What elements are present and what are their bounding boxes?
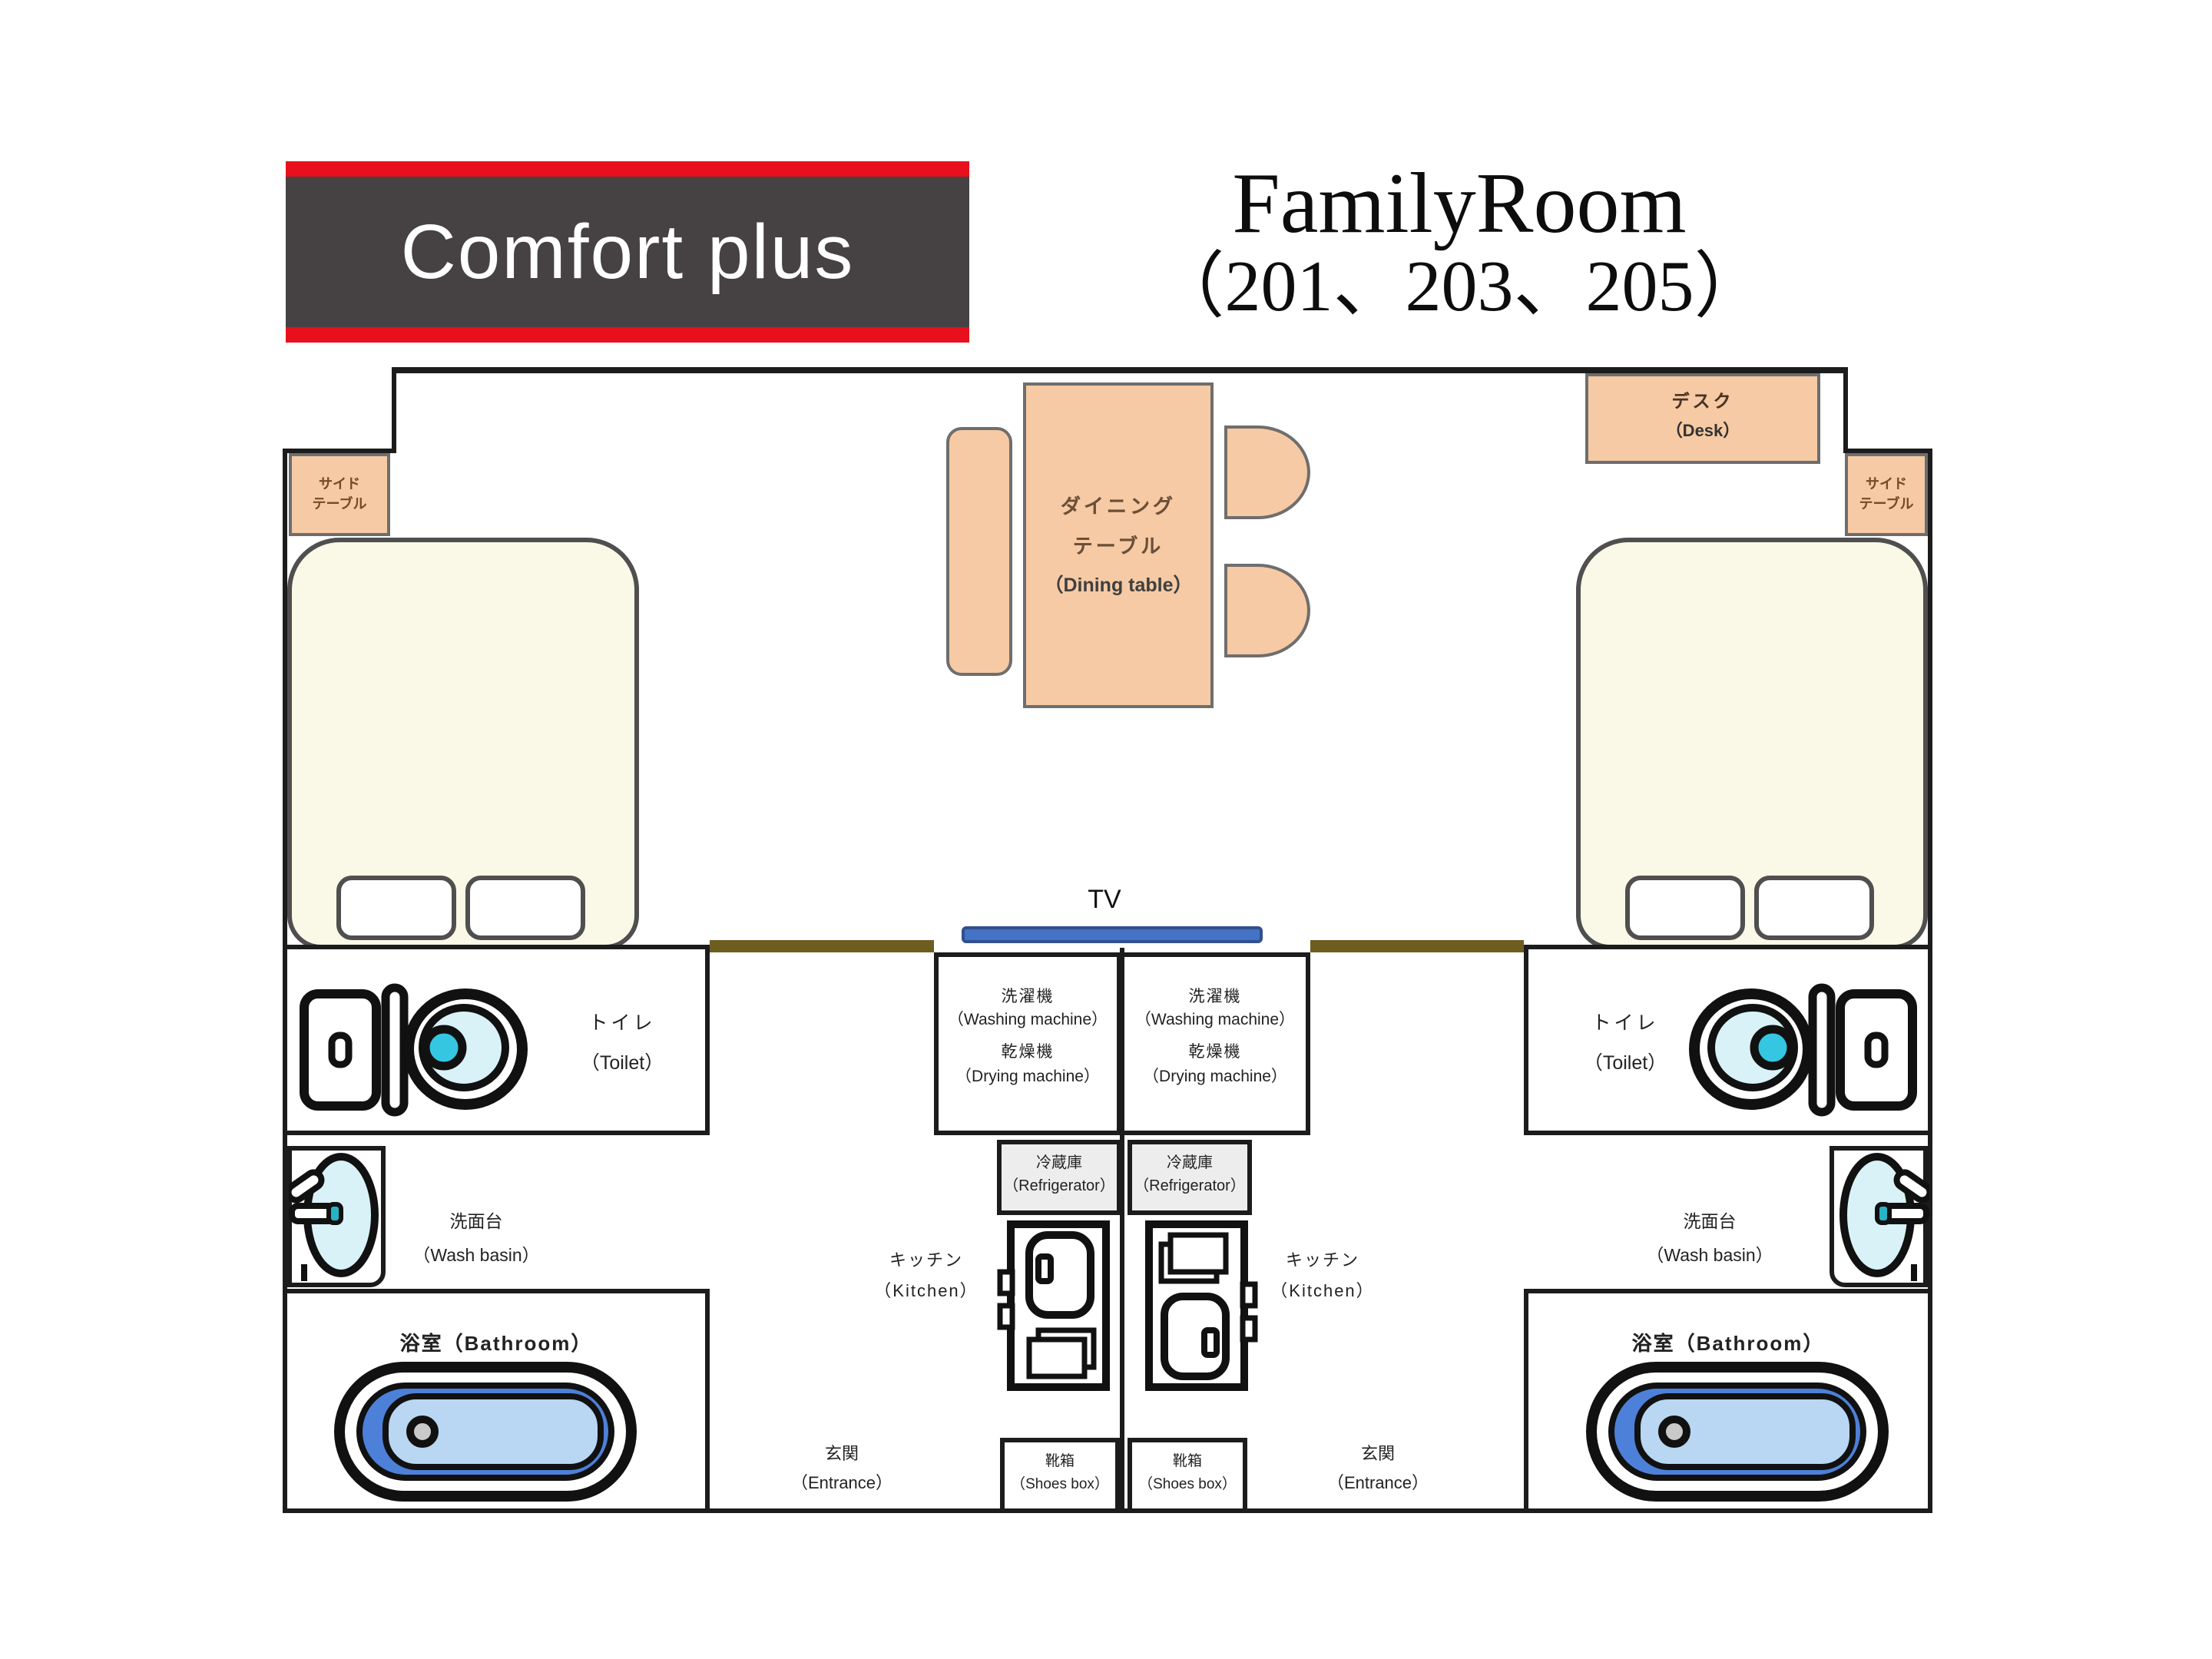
dryer-left-en: （Drying machine） [955,1065,1100,1088]
logo-red-bar-top [286,161,969,177]
dryer-right-jp: 乾燥機 [1189,1042,1242,1065]
dining-table-label-1: ダイニング [1061,487,1176,527]
wall-top [393,367,1848,373]
wall-notch-left [392,367,396,453]
entrance-label-left: 玄関 （Entrance） [773,1441,911,1500]
dining-table: ダイニング テーブル （Dining table） [1023,382,1214,708]
desk-label-jp: デスク [1672,389,1734,413]
bed-left-pillow-1 [336,876,456,940]
kitchen-label-left-en: （Kitchen） [857,1278,995,1309]
wall-notch-right [1843,367,1848,453]
bed-left-pillow-2 [465,876,585,940]
page-title: FamilyRoom （201、203、205） [1014,160,1905,326]
washer-left-jp: 洗濯機 [1002,986,1055,1009]
logo: Comfort plus [286,161,969,343]
bathtub-icon-left [333,1361,637,1502]
kitchen-unit-left-icon [997,1220,1111,1392]
wash-basin-label-left-jp: 洗面台 [392,1207,561,1241]
toilet-label-left-en: （Toilet） [538,1044,707,1084]
dryer-left-jp: 乾燥機 [1002,1042,1055,1065]
toilet-label-right-jp: トイレ [1541,1003,1710,1044]
bathtub-icon-right [1585,1361,1889,1502]
side-table-left-label-1: サイド [319,474,360,495]
shoes-box-left-en: （Shoes box） [1011,1473,1109,1496]
kitchen-label-right-jp: キッチン [1253,1247,1392,1278]
refrigerator-right: 冷蔵庫 （Refrigerator） [1128,1140,1252,1215]
toilet-label-right: トイレ （Toilet） [1541,1003,1710,1084]
side-table-right-label-2: テーブル [1859,495,1914,515]
fridge-left-jp: 冷蔵庫 [1036,1152,1082,1175]
shoes-box-right: 靴箱 （Shoes box） [1128,1438,1247,1513]
bed-right-pillow-1 [1625,876,1745,940]
wash-basin-label-right-jp: 洗面台 [1625,1207,1794,1241]
kitchen-label-right-en: （Kitchen） [1253,1278,1392,1309]
dining-bench [946,427,1012,676]
wash-basin-right [1830,1146,1928,1287]
entrance-label-right-en: （Entrance） [1309,1471,1447,1501]
entrance-label-right: 玄関 （Entrance） [1309,1441,1447,1500]
shoes-box-right-en: （Shoes box） [1138,1473,1237,1496]
kitchen-unit-right-icon [1144,1220,1258,1392]
washer-right-en: （Washing machine） [1135,1009,1295,1032]
side-table-left-label-2: テーブル [313,495,367,515]
wall-olive-right [1310,940,1524,952]
dining-chair-2 [1224,564,1310,657]
toilet-icon-right [1687,980,1920,1118]
shoes-box-left-jp: 靴箱 [1045,1450,1075,1473]
entrance-label-left-en: （Entrance） [773,1471,911,1501]
dining-table-label-en: （Dining table） [1044,567,1192,605]
tv-label: TV [1066,885,1143,916]
desk: デスク （Desk） [1585,373,1820,464]
entrance-label-left-jp: 玄関 [773,1441,911,1471]
tv [962,926,1263,943]
washing-machine-left: 洗濯機 （Washing machine） 乾燥機 （Drying machin… [934,952,1121,1135]
floor-plan-page: Comfort plus FamilyRoom （201、203、205） サイ… [0,0,2212,1659]
toilet-label-left: トイレ （Toilet） [538,1003,707,1084]
side-table-left: サイド テーブル [289,453,390,536]
washer-left-en: （Washing machine） [948,1009,1108,1032]
page-title-line2: （201、203、205） [1014,250,1905,327]
floor-plan-canvas: Comfort plus FamilyRoom （201、203、205） サイ… [0,0,2212,1659]
bed-right-pillow-2 [1754,876,1874,940]
fridge-right-en: （Refrigerator） [1134,1175,1246,1198]
logo-text: Comfort plus [286,183,969,321]
wash-basin-label-right-en: （Wash basin） [1625,1241,1794,1275]
fridge-right-jp: 冷蔵庫 [1167,1152,1213,1175]
washer-right-jp: 洗濯機 [1189,986,1242,1009]
dryer-right-en: （Drying machine） [1143,1065,1287,1088]
logo-red-bar-bottom [286,327,969,343]
dining-table-label-2: テーブル [1073,527,1164,567]
bathroom-label-right: 浴室（Bathroom） [1567,1327,1889,1356]
page-title-line1: FamilyRoom [1014,160,1905,250]
toilet-icon-left [296,980,530,1118]
wash-basin-left [287,1146,386,1287]
wall-olive-left [710,940,934,952]
entrance-label-right-jp: 玄関 [1309,1441,1447,1471]
refrigerator-left: 冷蔵庫 （Refrigerator） [997,1140,1121,1215]
washing-machine-right: 洗濯機 （Washing machine） 乾燥機 （Drying machin… [1120,952,1310,1135]
desk-label-en: （Desk） [1666,418,1740,442]
dining-chair-1 [1224,426,1310,519]
wash-basin-left-icon [289,1147,387,1289]
toilet-label-right-en: （Toilet） [1541,1044,1710,1084]
kitchen-label-left-jp: キッチン [857,1247,995,1278]
fridge-left-en: （Refrigerator） [1003,1175,1115,1198]
bathroom-label-left: 浴室（Bathroom） [335,1327,657,1356]
shoes-box-left: 靴箱 （Shoes box） [1000,1438,1120,1513]
side-table-right-label-1: サイド [1866,474,1907,495]
side-table-right: サイド テーブル [1845,453,1928,536]
wash-basin-right-icon [1831,1147,1929,1289]
wash-basin-label-left-en: （Wash basin） [392,1241,561,1275]
wash-basin-label-left: 洗面台 （Wash basin） [392,1207,561,1274]
shoes-box-right-jp: 靴箱 [1173,1450,1202,1473]
kitchen-label-left: キッチン （Kitchen） [857,1247,995,1308]
wash-basin-label-right: 洗面台 （Wash basin） [1625,1207,1794,1274]
kitchen-label-right: キッチン （Kitchen） [1253,1247,1392,1308]
toilet-label-left-jp: トイレ [538,1003,707,1044]
